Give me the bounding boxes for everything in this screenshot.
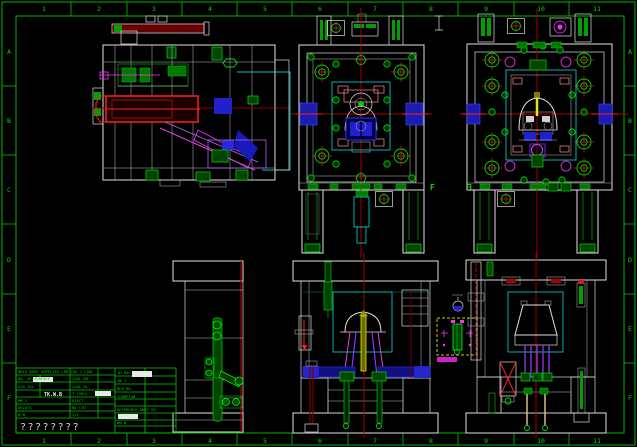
svg-text:D: D xyxy=(628,256,632,264)
svg-text:5: 5 xyxy=(263,5,267,13)
view-plan-moving-half xyxy=(291,8,443,258)
svg-text:6: 6 xyxy=(318,437,322,445)
svg-text:EJECT: EJECT xyxy=(72,398,84,403)
svg-text:B: B xyxy=(628,117,632,125)
svg-text:DELAYS: DELAYS xyxy=(18,405,32,410)
title-block: MOLD BASE SUPPLIER LKM CAV 1 COOL NO. OF… xyxy=(16,368,176,433)
svg-text:NO CYD: NO CYD xyxy=(72,405,86,410)
leader-target-icon xyxy=(508,19,525,34)
svg-text:11: 11 xyxy=(593,5,601,13)
svg-text:7: 7 xyxy=(373,437,377,445)
svg-text:A: A xyxy=(7,48,11,56)
view-side-section-2 xyxy=(466,253,606,438)
svg-text:COOL NO.: COOL NO. xyxy=(72,376,90,381)
unrendered-characters-row: ???????? xyxy=(20,422,80,433)
svg-text:E: E xyxy=(7,325,11,333)
svg-text:COOL HL.: COOL HL. xyxy=(72,384,90,389)
svg-text:MLD NO.: MLD NO. xyxy=(117,386,133,391)
svg-text:AIR TOL: AIR TOL xyxy=(18,384,35,389)
svg-text:F: F xyxy=(7,394,11,402)
svg-text:1/1: 1/1 xyxy=(72,412,80,417)
svg-text:C: C xyxy=(628,186,632,194)
svg-text:E: E xyxy=(628,325,632,333)
leader-target-icon xyxy=(498,192,515,207)
svg-text:ZW 1: ZW 1 xyxy=(117,378,127,383)
svg-text:7: 7 xyxy=(373,5,377,13)
svg-text:B: B xyxy=(7,117,11,125)
svg-text:4: 4 xyxy=(208,437,212,445)
svg-text:NO. OF SURFACE: NO. OF SURFACE xyxy=(18,376,51,381)
title-row: MOLD BASE SUPPLIER LKM CAV 1 COOL xyxy=(18,369,94,374)
svg-text:W.W: W.W xyxy=(18,412,26,417)
svg-text:2: 2 xyxy=(97,5,101,13)
svg-text:F: F xyxy=(628,394,632,402)
svg-text:1: 1 xyxy=(42,5,46,13)
svg-text:WW.W: WW.W xyxy=(117,420,127,425)
zone-letters-left: A B C D E F xyxy=(7,48,11,402)
zone-numbers-bottom: 1 2 3 4 5 6 7 8 9 10 11 xyxy=(42,437,601,445)
title-block-white-cell xyxy=(95,391,111,396)
title-block-white-cell xyxy=(118,414,138,419)
svg-text:MM 2: MM 2 xyxy=(18,398,27,403)
svg-text:1H.00S: 1H.00S xyxy=(117,370,131,375)
svg-text:6: 6 xyxy=(318,5,322,13)
svg-text:D: D xyxy=(7,256,11,264)
section-letter-left: F xyxy=(430,183,435,192)
view-plan-fixed-half xyxy=(460,8,628,258)
zone-numbers-top: 1 2 3 4 5 6 7 8 9 10 11 xyxy=(42,5,601,13)
view-side-section xyxy=(92,16,290,187)
section-letter-right: F xyxy=(467,183,472,192)
svg-text:1: 1 xyxy=(42,437,46,445)
leader-target-icon xyxy=(328,21,345,36)
svg-text:8: 8 xyxy=(429,5,433,13)
zone-letters-right: A B C D E F xyxy=(628,48,632,402)
svg-text:C: C xyxy=(7,186,11,194)
title-bold-entry: TK.W.B xyxy=(44,392,62,398)
svg-text:3: 3 xyxy=(152,437,156,445)
svg-text:10: 10 xyxy=(537,437,545,445)
title-block-white-cell xyxy=(132,371,152,377)
svg-text:T CIRCL.: T CIRCL. xyxy=(72,391,90,396)
support-pillar-cross xyxy=(500,362,516,396)
svg-text:CHAMPION: CHAMPION xyxy=(117,394,136,399)
detail-label-blob xyxy=(437,357,457,362)
svg-text:3: 3 xyxy=(152,5,156,13)
svg-text:REFERENCE UNIT BY: REFERENCE UNIT BY xyxy=(117,407,157,412)
svg-text:8: 8 xyxy=(429,437,433,445)
svg-text:4: 4 xyxy=(208,5,212,13)
cad-drawing-canvas[interactable]: 1 2 3 4 5 6 7 8 9 10 11 1 2 3 4 5 6 7 8 … xyxy=(0,0,637,447)
svg-text:2: 2 xyxy=(97,437,101,445)
section-symbol xyxy=(435,16,443,30)
leader-target-icon xyxy=(376,192,393,207)
svg-text:11: 11 xyxy=(593,437,601,445)
view-lifter-side xyxy=(173,261,243,432)
svg-text:10: 10 xyxy=(537,5,545,13)
svg-text:5: 5 xyxy=(263,437,267,445)
svg-text:9: 9 xyxy=(484,5,488,13)
view-front-section xyxy=(293,253,438,438)
svg-text:9: 9 xyxy=(484,437,488,445)
svg-text:A: A xyxy=(628,48,632,56)
mold-assembly-drawing: 1 2 3 4 5 6 7 8 9 10 11 1 2 3 4 5 6 7 8 … xyxy=(0,0,637,447)
